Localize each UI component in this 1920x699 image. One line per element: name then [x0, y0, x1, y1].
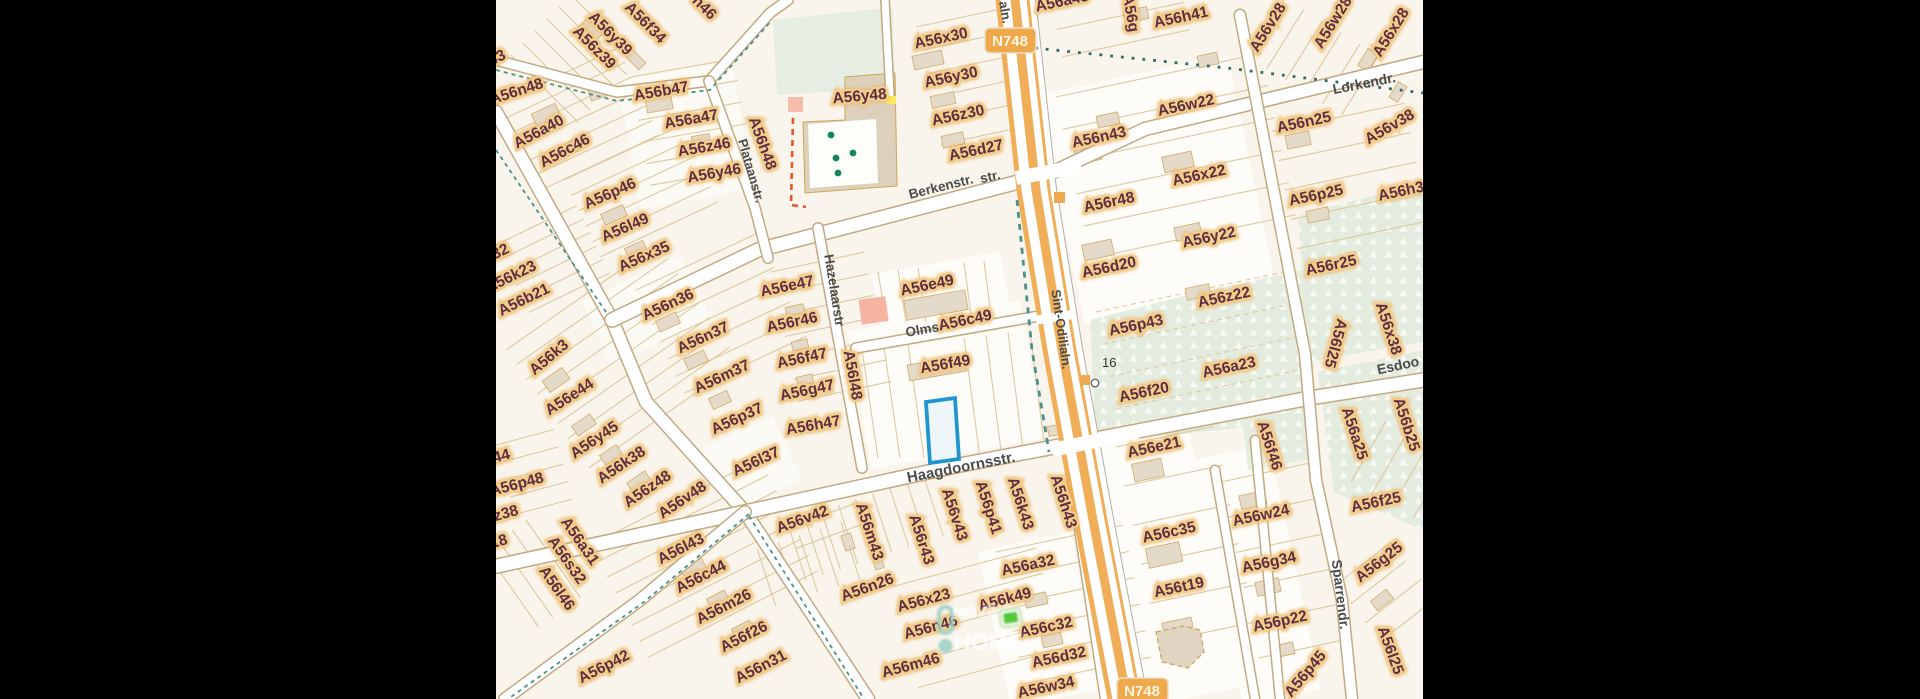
svg-text:HOME: HOME [954, 629, 1023, 655]
svg-text:N748: N748 [992, 33, 1028, 50]
svg-text:N748: N748 [1124, 683, 1160, 699]
svg-text:16: 16 [1102, 355, 1116, 370]
